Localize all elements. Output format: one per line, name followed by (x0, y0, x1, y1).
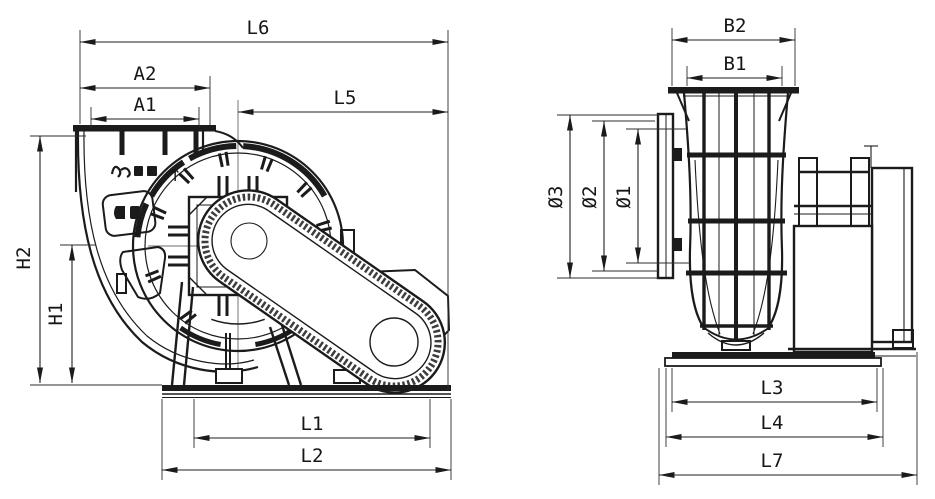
drawing-sheet: ↑ (0, 0, 935, 499)
inlet-flange-plate (658, 114, 682, 278)
dim-label-a2: A2 (134, 63, 157, 85)
dim-l5: L5 (238, 87, 448, 112)
base-plate-right (665, 352, 881, 366)
dim-label-phi1: Ø1 (613, 186, 635, 209)
dim-a1: A1 (91, 94, 199, 128)
dim-phi3: Ø3 (545, 115, 658, 278)
dim-h1: H1 (45, 245, 96, 383)
dim-label-l2: L2 (301, 445, 324, 467)
dim-label-l7: L7 (761, 450, 784, 472)
rotation-arrow: ↑ (168, 166, 182, 186)
dim-label-l3: L3 (761, 377, 784, 399)
belt-guard (198, 190, 445, 392)
dim-label-a1: A1 (134, 94, 157, 116)
motor-assembly (788, 146, 916, 356)
dim-l7: L7 (659, 352, 917, 485)
inlet-cage (668, 87, 799, 350)
brand-mark: ↑ (112, 166, 182, 186)
fan-dimension-drawing: ↑ (0, 0, 935, 499)
motor-body (872, 168, 912, 342)
dim-label-h1: H1 (45, 303, 67, 326)
dim-label-b2: B2 (724, 15, 747, 37)
belt-guard-box (794, 226, 872, 352)
dim-label-h2: H2 (13, 247, 35, 270)
dim-b2: B2 (672, 15, 795, 86)
right-view: B2 B1 Ø3 Ø2 (545, 15, 917, 485)
dim-label-l6: L6 (247, 17, 270, 39)
dim-label-phi2: Ø2 (579, 186, 601, 209)
dim-l2: L2 (162, 399, 451, 480)
dim-l1: L1 (194, 399, 430, 448)
dim-label-l1: L1 (301, 413, 324, 435)
dim-label-l5: L5 (334, 87, 357, 109)
dim-label-l4: L4 (761, 412, 784, 434)
dim-l3: L3 (672, 368, 877, 412)
dim-b1: B1 (687, 53, 782, 86)
dim-label-b1: B1 (724, 53, 747, 75)
left-view: ↑ (13, 17, 451, 480)
dim-label-phi3: Ø3 (545, 186, 567, 209)
